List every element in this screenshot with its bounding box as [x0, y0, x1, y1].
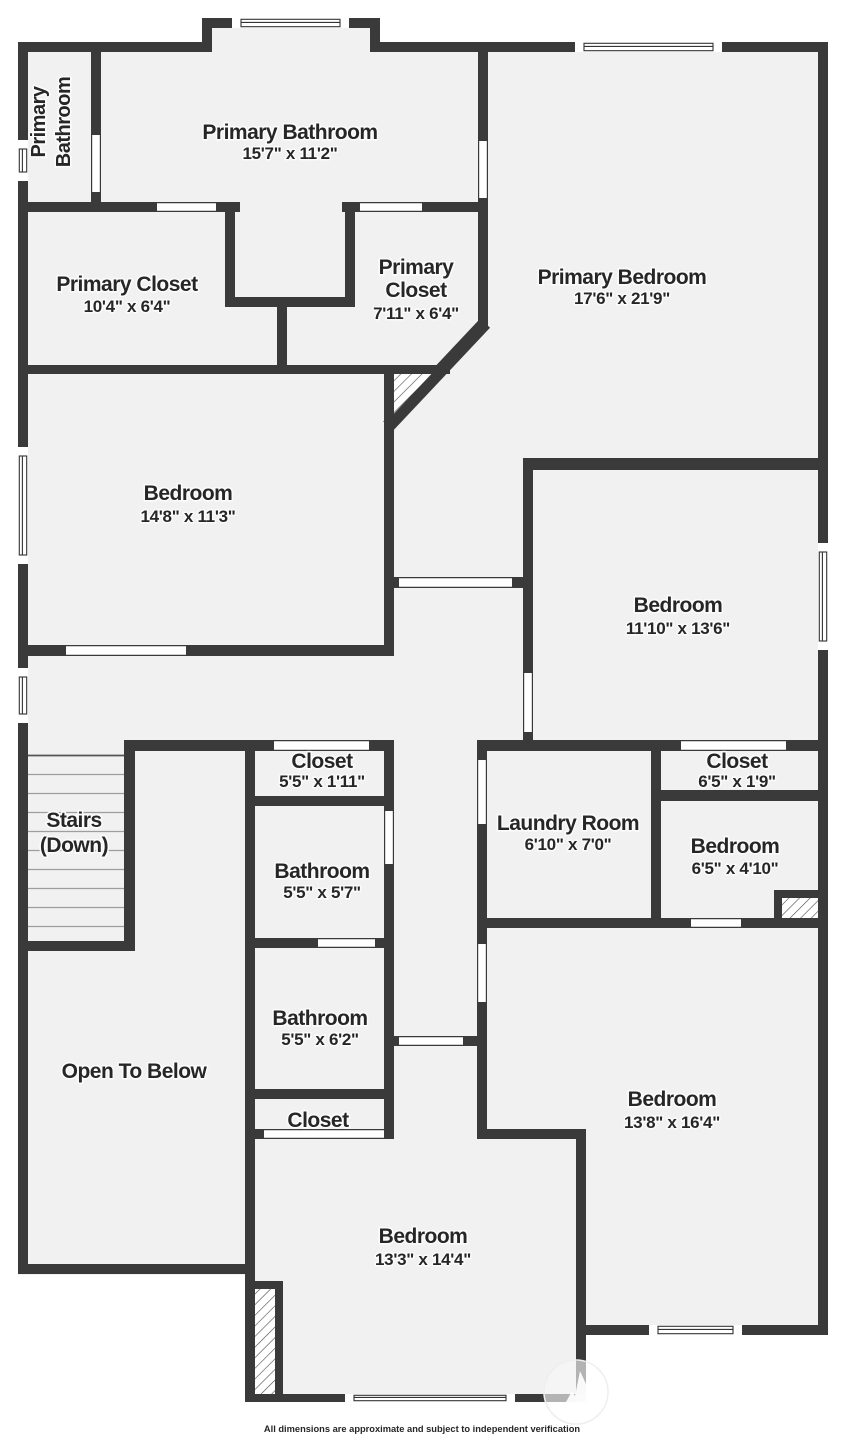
- svg-text:Primary Closet: Primary Closet: [56, 273, 198, 296]
- svg-text:Bathroom: Bathroom: [53, 77, 75, 167]
- svg-text:17'6" x 21'9": 17'6" x 21'9": [574, 289, 670, 308]
- svg-text:11'10" x 13'6": 11'10" x 13'6": [626, 619, 730, 638]
- svg-text:Bathroom: Bathroom: [274, 860, 369, 883]
- svg-text:5'5" x 1'11": 5'5" x 1'11": [279, 772, 365, 791]
- svg-text:10'4" x 6'4": 10'4" x 6'4": [84, 297, 171, 316]
- svg-text:Bedroom: Bedroom: [691, 835, 780, 858]
- svg-text:Closet: Closet: [706, 750, 768, 773]
- svg-text:Closet: Closet: [291, 750, 353, 773]
- svg-text:Bathroom: Bathroom: [272, 1007, 367, 1030]
- svg-text:7'11" x 6'4": 7'11" x 6'4": [373, 304, 459, 323]
- svg-text:(Down): (Down): [40, 834, 108, 857]
- svg-text:Open To Below: Open To Below: [62, 1060, 208, 1083]
- svg-text:Primary: Primary: [28, 85, 50, 157]
- svg-text:6'10" x 7'0": 6'10" x 7'0": [525, 835, 612, 854]
- svg-text:6'5" x 1'9": 6'5" x 1'9": [698, 772, 776, 791]
- svg-text:6'5" x 4'10": 6'5" x 4'10": [692, 859, 779, 878]
- svg-text:15'7" x 11'2": 15'7" x 11'2": [243, 144, 338, 163]
- svg-text:Bedroom: Bedroom: [379, 1225, 468, 1248]
- svg-text:Bedroom: Bedroom: [634, 594, 723, 617]
- svg-text:5'5" x 6'2": 5'5" x 6'2": [281, 1030, 359, 1049]
- svg-text:5'5" x 5'7": 5'5" x 5'7": [283, 883, 361, 902]
- svg-text:Bedroom: Bedroom: [144, 482, 233, 505]
- svg-text:Primary Bedroom: Primary Bedroom: [538, 266, 707, 289]
- svg-text:Primary Bathroom: Primary Bathroom: [202, 121, 377, 144]
- svg-text:13'3" x 14'4": 13'3" x 14'4": [375, 1250, 471, 1269]
- svg-text:All dimensions are approximate: All dimensions are approximate and subje…: [264, 1424, 580, 1434]
- svg-text:13'8" x 16'4": 13'8" x 16'4": [624, 1113, 720, 1132]
- svg-text:Laundry Room: Laundry Room: [497, 812, 639, 835]
- svg-text:Stairs: Stairs: [46, 809, 101, 832]
- svg-text:Primary: Primary: [379, 256, 455, 279]
- svg-text:Bedroom: Bedroom: [628, 1088, 717, 1111]
- svg-text:14'8" x 11'3": 14'8" x 11'3": [141, 507, 236, 526]
- svg-text:Closet: Closet: [287, 1109, 349, 1132]
- svg-text:Closet: Closet: [385, 279, 447, 302]
